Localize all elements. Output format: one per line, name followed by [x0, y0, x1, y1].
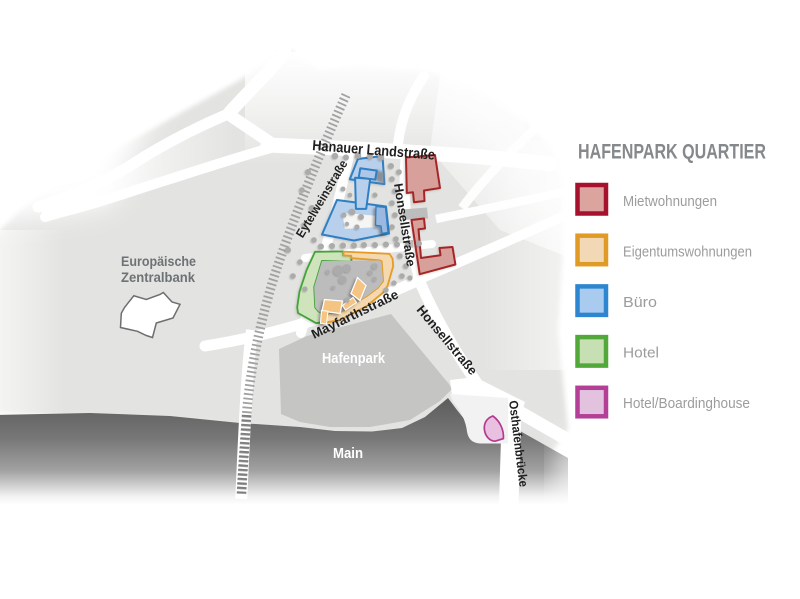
svg-text:Eigentumswohnungen: Eigentumswohnungen: [623, 244, 752, 261]
svg-text:Hotel/Boardinghouse: Hotel/Boardinghouse: [623, 395, 750, 412]
svg-text:Main: Main: [333, 445, 363, 462]
svg-text:Hafenpark: Hafenpark: [322, 350, 386, 367]
svg-text:Mietwohnungen: Mietwohnungen: [623, 193, 717, 210]
svg-text:Hotel: Hotel: [623, 345, 659, 362]
svg-text:Büro: Büro: [623, 294, 657, 311]
svg-text:HAFENPARK QUARTIER: HAFENPARK QUARTIER: [578, 141, 766, 164]
svg-text:Europäische: Europäische: [121, 253, 196, 269]
svg-text:Zentralbank: Zentralbank: [121, 269, 195, 285]
